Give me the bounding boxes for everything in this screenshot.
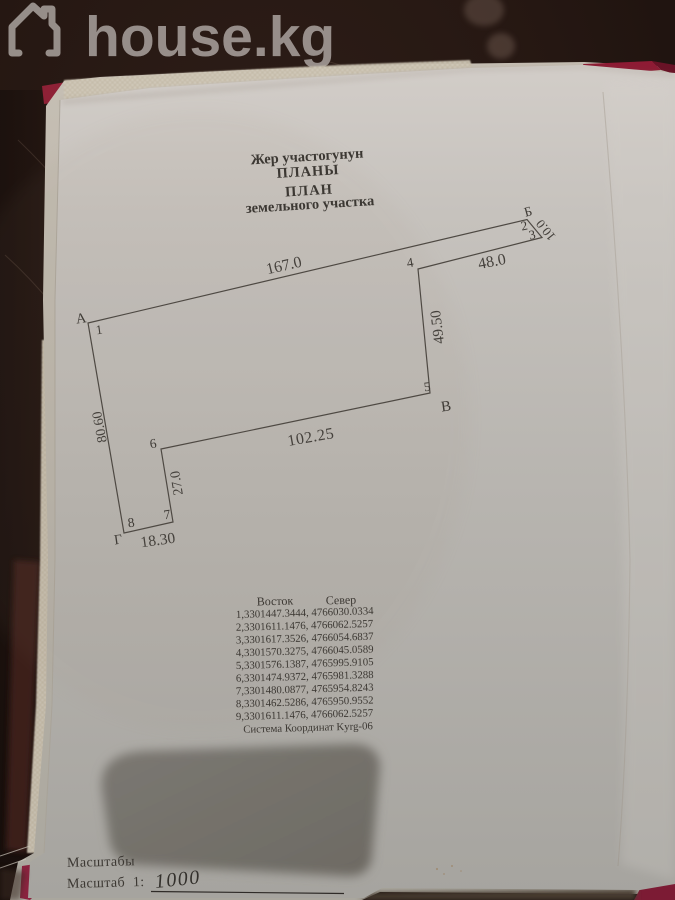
svg-text:Масштаб 1:: Масштаб 1:	[67, 875, 145, 892]
svg-text:house.kg: house.kg	[85, 5, 335, 69]
svg-text:Масштабы: Масштабы	[67, 854, 135, 871]
svg-text:Восток: Восток	[257, 593, 294, 608]
